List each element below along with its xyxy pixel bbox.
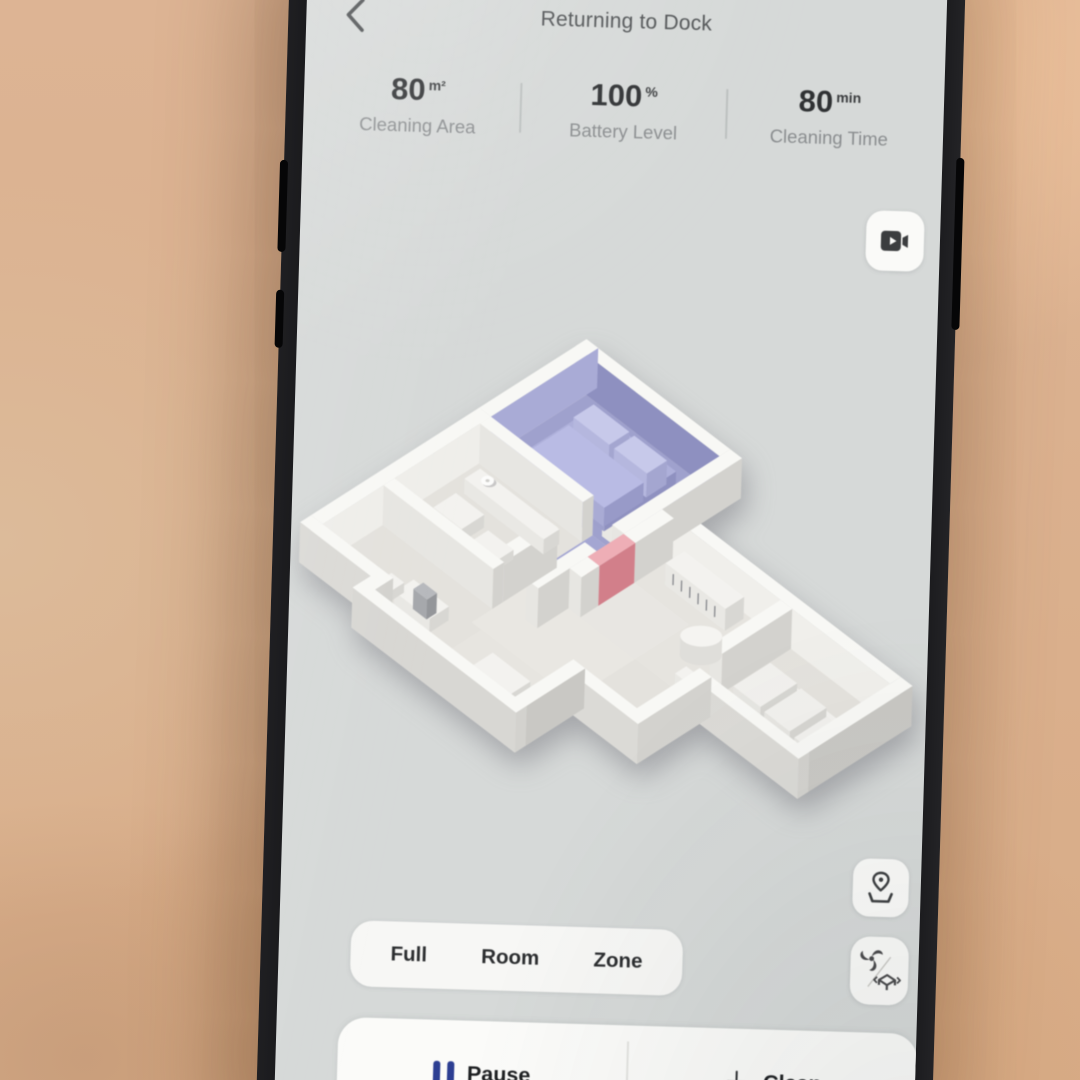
fan-3d-rotate-icon	[855, 942, 903, 999]
volume-down-button	[275, 290, 285, 348]
mode-selector: Full Room Zone	[350, 920, 684, 996]
stat-battery: 100% Battery Level	[521, 75, 727, 146]
cleaning-area-value: 80	[391, 71, 427, 107]
cleaning-time-unit: min	[836, 89, 861, 106]
clean-button[interactable]: Clean	[626, 1025, 918, 1080]
app-screen: Returning to Dock 80m² Cleaning Area 100…	[271, 0, 950, 1080]
floor-plan-map[interactable]	[291, 331, 929, 827]
broom-icon	[723, 1068, 751, 1080]
cleaning-time-label: Cleaning Time	[726, 124, 931, 152]
app-header: Returning to Dock	[306, 0, 947, 55]
phone-frame: Returning to Dock 80m² Cleaning Area 100…	[252, 0, 968, 1080]
battery-value: 100	[590, 77, 643, 114]
mode-zone[interactable]: Zone	[593, 948, 643, 973]
cleaning-area-label: Cleaning Area	[315, 112, 520, 140]
volume-up-button	[277, 160, 288, 252]
map-pin-icon	[863, 869, 898, 906]
battery-unit: %	[645, 84, 658, 100]
video-camera-icon	[879, 228, 912, 255]
camera-button[interactable]	[865, 210, 925, 272]
battery-label: Battery Level	[521, 118, 726, 146]
stat-cleaning-area: 80m² Cleaning Area	[315, 69, 521, 140]
pause-icon	[433, 1060, 455, 1080]
clean-label: Clean	[763, 1070, 822, 1080]
stat-cleaning-time: 80min Cleaning Time	[726, 81, 932, 152]
pause-label: Pause	[467, 1061, 531, 1080]
stats-row: 80m² Cleaning Area 100% Battery Level 80…	[315, 69, 933, 152]
photo-background: Returning to Dock 80m² Cleaning Area 100…	[0, 0, 1080, 1080]
cleaning-area-unit: m²	[428, 77, 446, 94]
action-bar: Pause	[334, 1017, 919, 1080]
mode-room[interactable]: Room	[481, 945, 540, 971]
page-title: Returning to Dock	[306, 0, 946, 43]
cleaning-time-value: 80	[798, 83, 834, 119]
power-button	[951, 158, 964, 330]
view-mode-button[interactable]	[849, 936, 909, 1006]
locate-robot-button[interactable]	[852, 858, 910, 918]
pause-button[interactable]: Pause	[336, 1017, 628, 1080]
mode-full[interactable]: Full	[390, 942, 427, 967]
